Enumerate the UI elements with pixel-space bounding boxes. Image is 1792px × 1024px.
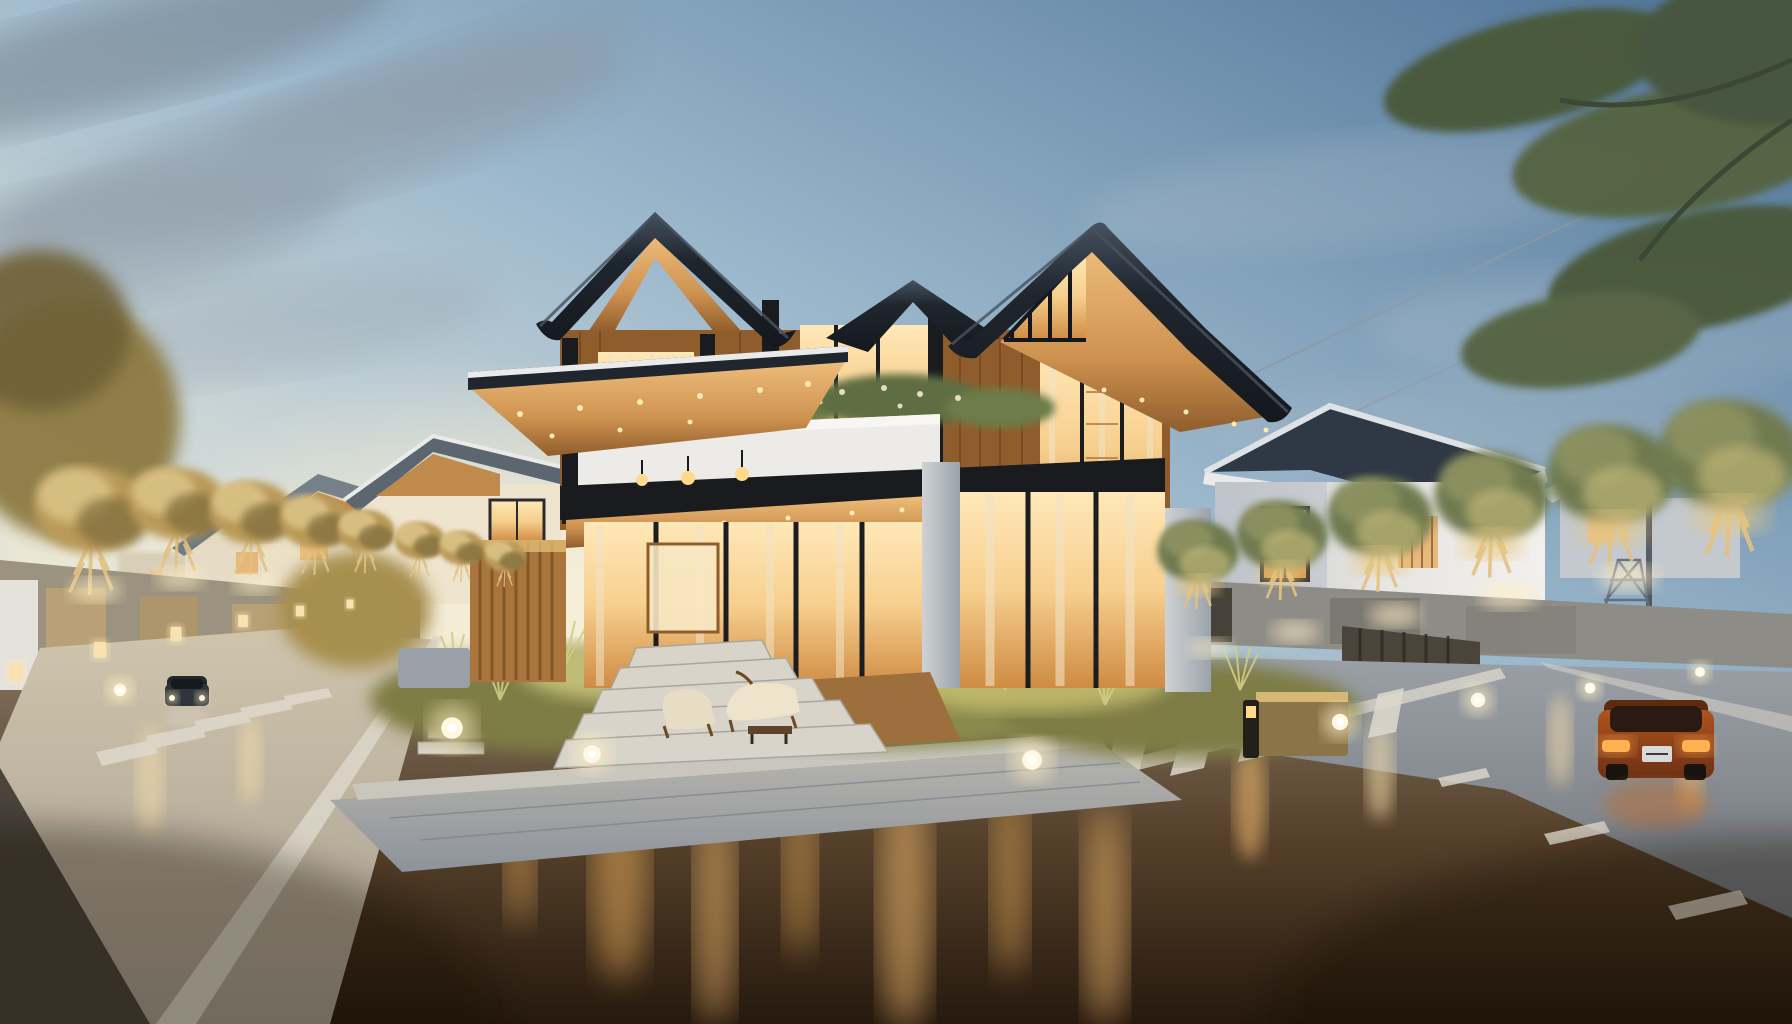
car-right <box>1598 700 1714 828</box>
car-left <box>165 676 209 728</box>
car-reflection <box>1604 780 1708 828</box>
concrete-pier-1 <box>922 462 960 688</box>
stone-planter <box>398 648 470 688</box>
coffee-table <box>748 726 792 734</box>
interior-art <box>648 544 718 632</box>
architectural-rendering <box>0 0 1792 1024</box>
